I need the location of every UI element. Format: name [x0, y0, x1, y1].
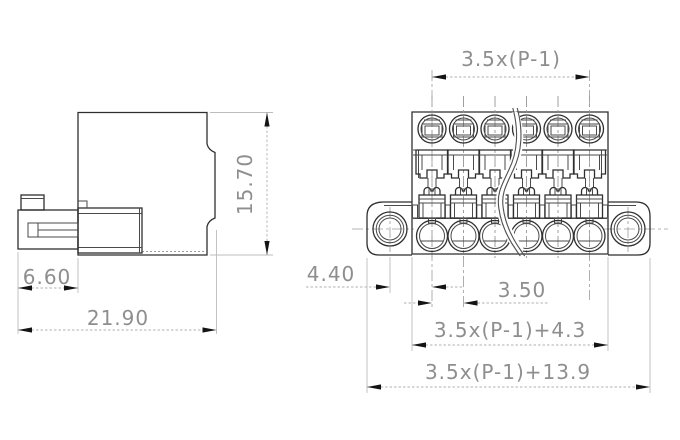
dim-body-width: 3.5x(P-1)+4.3 — [434, 318, 586, 342]
dim-pole-span: 3.5x(P-1) — [461, 47, 561, 71]
pole-2 — [448, 96, 480, 258]
pole-5 — [542, 96, 574, 258]
side-plug-section — [78, 201, 142, 253]
dim-total-depth: 21.90 — [87, 306, 149, 330]
side-latch — [18, 195, 78, 249]
dim-overall-width: 3.5x(P-1)+13.9 — [425, 360, 591, 384]
side-view: 15.70 6.60 21.90 — [18, 113, 273, 335]
terminal-block-drawing: 15.70 6.60 21.90 — [0, 0, 680, 440]
dim-pitch: 3.50 — [498, 278, 547, 302]
front-view: 3.5x(P-1) 4.40 3.50 3.5x(P-1)+4.3 3.5x(P… — [306, 47, 668, 393]
side-body-outline — [78, 113, 215, 256]
left-mounting-flange — [367, 202, 412, 255]
dim-height: 15.70 — [233, 153, 257, 215]
technical-drawing-page: 15.70 6.60 21.90 — [0, 0, 680, 440]
right-mounting-flange — [608, 202, 650, 255]
dim-hole-to-first-pole: 4.40 — [307, 262, 356, 286]
dim-latch-width: 6.60 — [23, 265, 72, 289]
